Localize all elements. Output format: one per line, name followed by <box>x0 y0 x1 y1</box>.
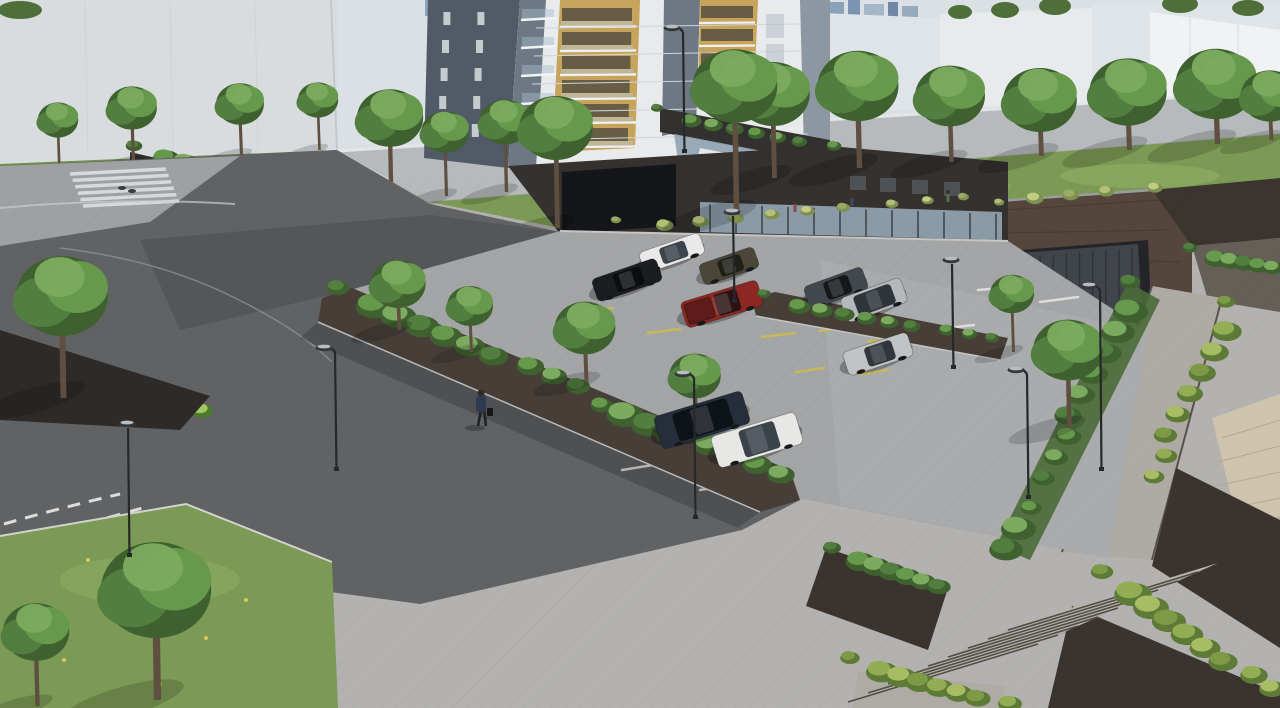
shrub <box>1103 321 1126 336</box>
shrub <box>896 568 914 580</box>
shrub <box>748 128 760 136</box>
shrub <box>1116 581 1142 598</box>
shrub <box>929 579 945 590</box>
shrub <box>1121 275 1136 284</box>
person-head <box>478 390 485 397</box>
lamp-base <box>1099 467 1104 471</box>
balcony-slab <box>560 50 636 51</box>
tree-canopy <box>16 604 52 633</box>
shrub <box>480 346 500 359</box>
side-window <box>443 12 450 25</box>
tree-canopy <box>929 66 967 96</box>
shrub <box>1260 680 1278 692</box>
tree-canopy <box>370 90 406 119</box>
lamp-pole <box>694 378 696 518</box>
tree-canopy <box>117 87 144 109</box>
lamp-highlight <box>677 371 690 375</box>
lamp-highlight <box>945 257 958 261</box>
shrub <box>789 299 805 309</box>
tree-canopy <box>226 84 252 105</box>
shrub <box>1218 296 1231 304</box>
shrub <box>1190 364 1209 376</box>
balcony-balustrade <box>561 93 633 98</box>
shrub <box>542 367 560 379</box>
shrub <box>880 562 899 574</box>
flower <box>86 558 90 562</box>
rendering-canvas <box>0 0 1280 708</box>
shrub <box>881 316 894 324</box>
shrub <box>1003 517 1028 533</box>
shrub <box>609 402 635 419</box>
person-shadow <box>465 425 485 431</box>
tree-canopy <box>431 112 457 133</box>
shrub <box>769 465 788 477</box>
lamp-base <box>334 467 339 471</box>
shrub <box>705 119 718 128</box>
shrub <box>1183 243 1194 250</box>
shrub <box>1178 385 1196 397</box>
shrub <box>835 307 849 316</box>
lamp-highlight <box>726 209 739 213</box>
tree-canopy <box>456 287 481 307</box>
shrub <box>1191 638 1213 652</box>
tree-canopy <box>710 50 756 87</box>
lamp-highlight <box>1083 283 1096 287</box>
shrub <box>431 325 454 340</box>
shrub <box>858 312 872 321</box>
side-window <box>473 96 480 109</box>
side-window <box>476 40 483 53</box>
flower <box>204 636 208 640</box>
shrub <box>1033 471 1049 481</box>
lamp-pole <box>335 352 337 470</box>
shrub <box>887 667 909 681</box>
shrub <box>812 303 827 313</box>
tree-canopy <box>834 52 878 87</box>
tree-canopy <box>490 100 518 122</box>
lamp-pole <box>952 264 954 368</box>
tree-canopy <box>1047 320 1085 350</box>
balcony-glazing <box>701 6 753 18</box>
lamp-pole <box>683 32 685 152</box>
side-window <box>475 68 482 81</box>
side-window <box>441 68 448 81</box>
shrub <box>1242 666 1261 678</box>
tree-canopy <box>46 103 68 121</box>
shrub <box>999 696 1016 707</box>
tree-canopy <box>567 302 600 328</box>
shrub <box>827 141 837 148</box>
blank-wall-building <box>0 0 337 164</box>
tree-canopy <box>1018 69 1058 101</box>
shrub <box>1235 256 1251 266</box>
tree-canopy <box>1192 50 1236 85</box>
lamp-base <box>682 149 687 153</box>
tree-canopy <box>1105 59 1147 93</box>
balcony-slab <box>699 23 755 24</box>
shrub <box>1135 595 1160 611</box>
shrub <box>758 289 767 295</box>
balcony-glazing <box>562 8 632 21</box>
balcony-glazing <box>562 32 631 45</box>
shrub <box>1045 449 1062 460</box>
shrub <box>966 690 984 701</box>
balcony-balustrade <box>561 69 633 74</box>
lamp-highlight <box>666 25 679 29</box>
shrub <box>1115 300 1140 316</box>
balcony-balustrade <box>561 45 633 50</box>
shrub <box>1172 624 1195 639</box>
shrub <box>592 398 608 408</box>
shrub <box>792 136 803 143</box>
person-bag <box>487 408 493 416</box>
shrub <box>1264 261 1278 270</box>
shrub <box>985 333 995 340</box>
tree-canopy <box>382 261 412 285</box>
shrub <box>940 324 952 331</box>
side-window <box>442 40 449 53</box>
tree-canopy <box>999 275 1023 294</box>
lamp-highlight <box>121 421 134 425</box>
shrub <box>907 672 928 685</box>
shrub <box>947 684 966 696</box>
shrub <box>1249 258 1264 268</box>
shrub <box>1092 564 1108 574</box>
side-window <box>439 96 446 109</box>
shrub <box>328 280 344 290</box>
lamp-pole <box>1027 374 1029 498</box>
lamp-pole <box>733 216 735 302</box>
shrub <box>1156 449 1171 459</box>
balcony-slab <box>560 74 636 75</box>
tree-canopy <box>306 83 328 101</box>
person-torso <box>476 396 486 412</box>
shrub <box>824 542 837 550</box>
lamp-pole <box>128 428 130 556</box>
balcony-glazing <box>701 29 753 41</box>
shrub <box>1022 501 1037 510</box>
shrub <box>1145 470 1159 479</box>
shrub <box>963 329 974 336</box>
tree-canopy <box>534 97 574 129</box>
shrub <box>518 357 537 369</box>
balcony-slab <box>560 98 636 99</box>
shrub <box>1210 652 1230 665</box>
shrub <box>1167 406 1184 417</box>
shrub <box>904 320 916 328</box>
lamp-base <box>1026 495 1031 499</box>
lamp-base <box>693 515 698 519</box>
flower <box>244 598 248 602</box>
lamp-base <box>951 365 956 369</box>
shrub <box>1154 610 1178 625</box>
shrub <box>1213 321 1234 335</box>
shrub <box>841 651 855 660</box>
shrub <box>652 104 660 109</box>
architectural-rendering: Residential complex aerial rendering <box>0 0 1280 708</box>
lamp-highlight <box>318 345 331 349</box>
lamp-base <box>732 299 737 303</box>
shrub <box>1202 342 1222 355</box>
shrub <box>868 661 891 676</box>
balcony-glazing <box>562 56 630 69</box>
lamp-base <box>127 553 132 557</box>
lamp-pole <box>1100 290 1102 470</box>
side-window <box>477 12 484 25</box>
shrub <box>912 573 929 584</box>
lamp-highlight <box>1010 367 1023 371</box>
shrub <box>927 678 947 691</box>
balcony-balustrade <box>561 21 633 26</box>
tree-canopy <box>35 257 85 297</box>
shrub <box>1155 427 1171 438</box>
shrub <box>991 538 1014 553</box>
flower <box>62 658 66 662</box>
balcony-slab <box>699 46 755 47</box>
tree-canopy <box>123 543 183 591</box>
